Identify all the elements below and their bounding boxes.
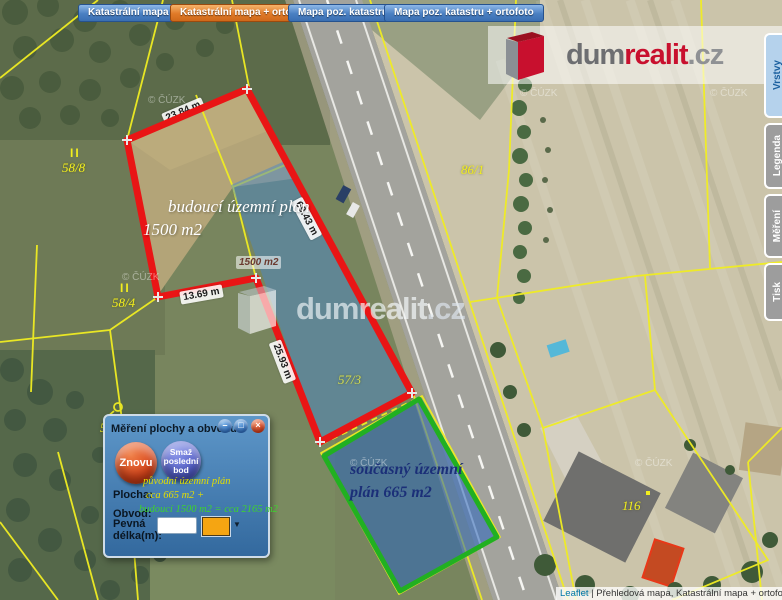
parcel-number: 86/1 [461,162,484,178]
leaflet-link[interactable]: Leaflet [560,588,589,599]
delete-last-point-button[interactable]: Smaž poslední bod [161,441,201,481]
logo-realit: realit [624,39,687,71]
measure-dialog: Měření plochy a obvodu – □ × Znovu Smaž … [103,414,270,558]
measure-label-segment: 13.69 m [179,284,223,304]
watermark-cz: .cz [427,291,465,326]
map-attribution: Leaflet | Přehledová mapa, Katastrální m… [556,587,782,600]
layer-button-mapa-poz-katastru[interactable]: Mapa poz. katastru [288,4,398,22]
annotation-current-plan-line2: plán 665 m2 [350,484,432,502]
dumrealit-box-icon [236,284,288,334]
dumrealit-watermark: dumrealit.cz [236,284,465,334]
side-tab-layers-label: Vrstvy [772,60,782,90]
fixed-length-label: Pevná délka(m): [113,518,159,542]
cuzk-watermark: © ČÚZK [710,88,747,99]
layer-button-mapa-poz-katastru-ortofoto[interactable]: Mapa poz. katastru + ortofoto [384,4,544,22]
annotation-future-plan-line2: 1500 m2 [143,220,202,240]
measure-label-area: 1500 m2 [236,256,281,269]
close-icon[interactable]: × [251,419,265,433]
maximize-icon[interactable]: □ [234,419,248,433]
parcel-number: 58/4 [112,295,135,311]
measure-label-segment: 25.93 m [269,339,296,384]
dialog-annotation-line2: cca 665 m2 + [146,490,204,501]
dumrealit-box-icon [504,30,556,80]
minimize-icon[interactable]: – [218,419,232,433]
parcel-number: 58/8 [62,160,85,176]
watermark-realit: realit [358,291,426,326]
layer-button-katastralni-mapa[interactable]: Katastrální mapa [78,4,179,22]
side-tab-legend-label: Legenda [772,135,782,176]
annotation-current-plan-line1: současný územní [350,461,462,479]
chevron-down-icon[interactable]: ▼ [233,520,241,529]
parcel-number: 57/3 [338,372,361,388]
annotation-future-plan-line1: budoucí územní plán [168,197,310,217]
side-tab-print-label: Tisk [772,282,782,302]
fixed-length-input[interactable] [157,517,197,534]
measure-dialog-titlebar[interactable]: Měření plochy a obvodu – □ × [105,416,268,436]
cuzk-watermark: © ČÚZK [635,458,672,469]
side-tab-layers[interactable]: Vrstvy [764,33,782,118]
line-color-swatch[interactable] [202,517,230,536]
parcel-number: 116 [622,498,641,514]
side-tab-measure[interactable]: Měření [764,194,782,258]
attribution-text: | Přehledová mapa, Katastrální mapa + or… [591,588,782,599]
watermark-dum: dum [296,291,358,326]
logo-band: dumrealit.cz [488,26,782,84]
dialog-annotation-line1: původní územní plán [143,476,231,487]
side-tab-measure-label: Měření [772,210,782,242]
side-tab-legend[interactable]: Legenda [764,123,782,189]
cuzk-watermark: © ČÚZK [520,88,557,99]
logo-dum: dum [566,39,624,71]
parcel-mark: II [120,281,131,295]
cuzk-watermark: © ČÚZK [148,95,185,106]
logo-cz: .cz [688,39,724,71]
parcel-mark: II [70,146,81,160]
dialog-annotation-line3: budoucí 1500 m2 = cca 2165 m2 [139,504,278,515]
side-tab-print[interactable]: Tisk [764,263,782,321]
